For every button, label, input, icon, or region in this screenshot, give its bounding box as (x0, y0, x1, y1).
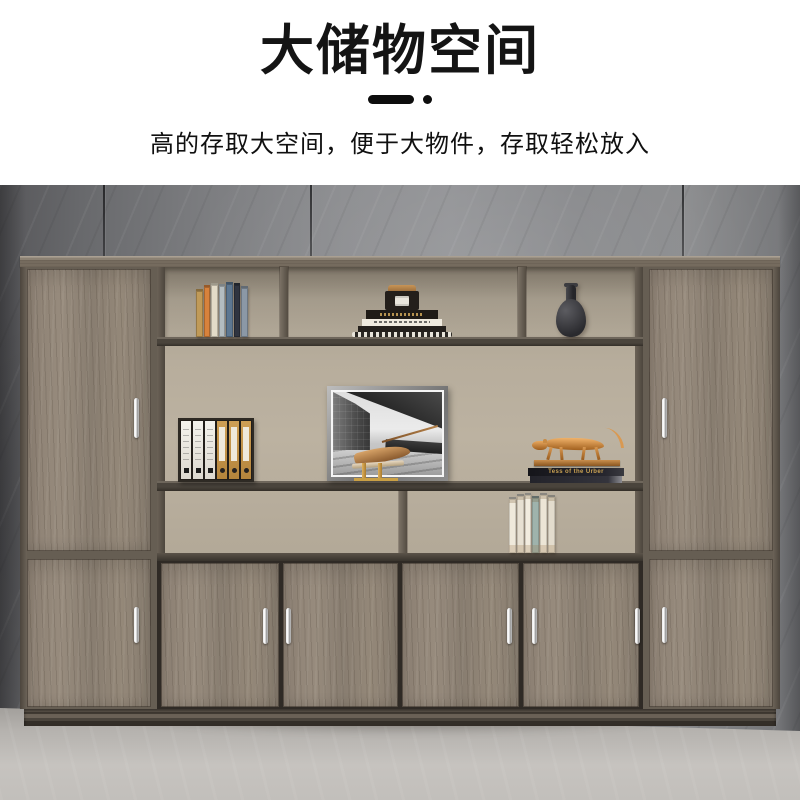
door-handle (507, 608, 512, 644)
left-tall-cabinet (20, 267, 157, 709)
book-spine (517, 494, 524, 553)
shelf-divider (399, 491, 407, 553)
wall-edge-shadow (778, 185, 800, 800)
book-under-statue: Tess of the Urber (528, 468, 624, 476)
right-lower-door (649, 559, 773, 707)
book-spine (226, 282, 233, 337)
left-lower-door (27, 559, 151, 707)
door-handle (263, 608, 268, 644)
sculpture-post (378, 463, 382, 478)
book-spine (509, 497, 516, 553)
product-poster: 大储物空间 高的存取大空间，便于大物件，存取轻松放入 (0, 0, 800, 800)
cabinet-top (20, 256, 780, 267)
hutch-side-panel (635, 267, 643, 561)
leopard-ear (543, 439, 547, 443)
white-binder-spine (205, 421, 215, 479)
book-spine (241, 286, 248, 337)
stacked-book (362, 319, 442, 326)
spiral-notebook (352, 332, 452, 337)
poster-title: 大储物空间 (0, 24, 800, 78)
book-spine (196, 289, 203, 337)
tan-binder-spine (241, 421, 251, 479)
left-upper-door (27, 269, 151, 551)
title-divider (0, 95, 800, 104)
book-spine (234, 283, 241, 337)
leopard-leg (581, 447, 586, 460)
sculpture-base (354, 478, 398, 481)
white-binder-spine (193, 421, 203, 479)
jar-label (395, 296, 409, 306)
leopard-leg (546, 447, 552, 460)
white-book-row (509, 492, 555, 553)
wall-seam (310, 185, 312, 258)
lower-door-1 (161, 563, 279, 707)
tan-binder-spine (217, 421, 227, 479)
hutch-side-panel (157, 267, 165, 561)
lower-door-3 (402, 563, 519, 707)
door-handle (532, 608, 537, 644)
door-handle (662, 607, 667, 643)
statue-base (534, 460, 620, 466)
book-under-statue (530, 476, 622, 483)
leopard-leg (594, 447, 600, 460)
tan-binder-spine (229, 421, 239, 479)
door-handle (134, 398, 139, 438)
door-handle (662, 398, 667, 438)
book-spine (548, 495, 555, 553)
shelf-divider (518, 267, 526, 337)
copper-leopard-statue: Tess of the Urber (528, 431, 628, 485)
standing-books (196, 284, 248, 337)
book-spine (211, 283, 218, 337)
right-tall-cabinet (643, 267, 780, 709)
lower-door-2 (283, 563, 398, 707)
book-spine (219, 284, 226, 337)
right-upper-door (649, 269, 773, 551)
door-handle (134, 607, 139, 643)
wall-seam (682, 185, 684, 257)
lower-door-4 (523, 563, 639, 707)
shelf-divider (280, 267, 288, 337)
lower-center-cabinet (157, 561, 643, 709)
book-spine (204, 285, 211, 337)
ceramic-vase (556, 283, 586, 337)
book-spine (540, 493, 547, 553)
file-binders (178, 418, 254, 482)
poster-header: 大储物空间 高的存取大空间，便于大物件，存取轻松放入 (0, 0, 800, 185)
white-binder-spine (181, 421, 191, 479)
vase-body (556, 299, 586, 337)
book-spine (532, 496, 539, 553)
divider-dot (423, 95, 432, 104)
hutch-bottom-edge (157, 553, 643, 561)
book-stack-with-candle-jar (350, 285, 454, 337)
divider-bar (368, 95, 414, 104)
cabinet-plinth (24, 709, 776, 726)
poster-subtitle: 高的存取大空间，便于大物件，存取轻松放入 (0, 124, 800, 159)
wall-seam (103, 185, 105, 256)
door-handle (286, 608, 291, 644)
stacked-book (366, 310, 438, 319)
sculpture-post (362, 463, 366, 478)
wooden-bird-sculpture (348, 437, 448, 481)
shelf-board (157, 337, 643, 346)
book-spine-title: Tess of the Urber (548, 469, 604, 475)
door-handle (635, 608, 640, 644)
product-photo: Tess of the Urber (0, 185, 800, 800)
book-spine (525, 493, 532, 553)
